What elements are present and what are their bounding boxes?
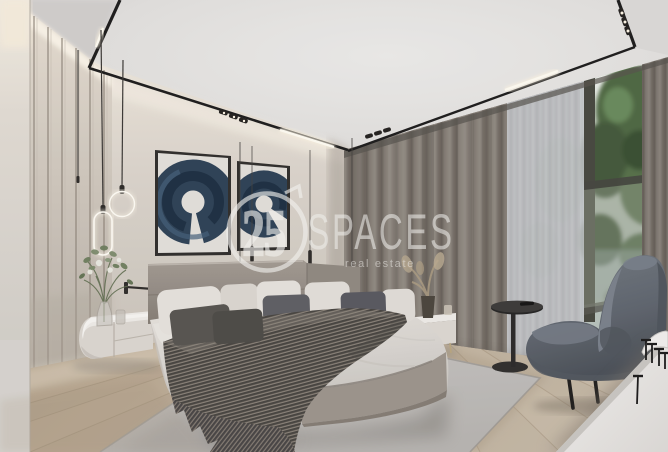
svg-text:real estate: real estate xyxy=(345,258,415,270)
svg-text:25: 25 xyxy=(242,198,286,271)
svg-text:SPACES: SPACES xyxy=(307,204,454,259)
